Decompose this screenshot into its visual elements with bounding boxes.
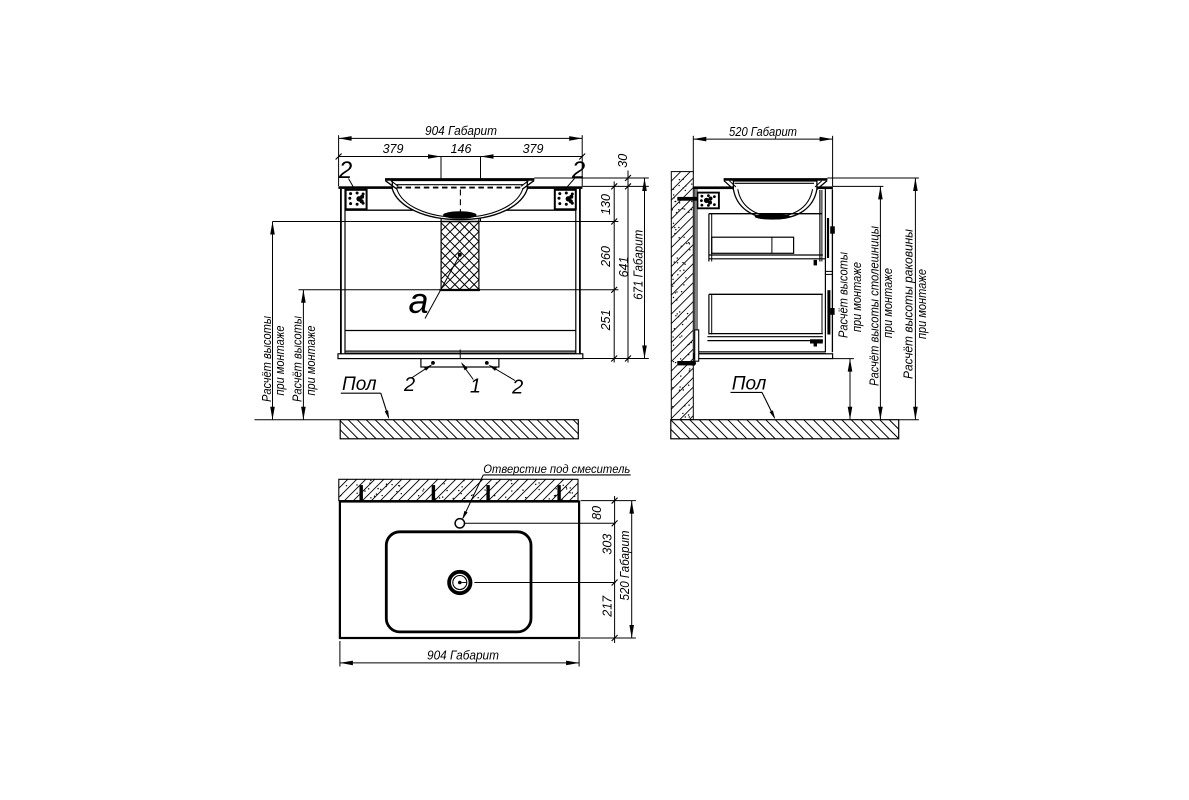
svg-text:671 Габарит: 671 Габарит <box>631 230 645 300</box>
svg-text:520 Габарит: 520 Габарит <box>729 124 797 139</box>
svg-text:при монтаже: при монтаже <box>915 269 929 339</box>
svg-text:260: 260 <box>599 246 613 268</box>
svg-text:Расчёт высоты: Расчёт высоты <box>291 316 305 402</box>
svg-text:при монтаже: при монтаже <box>850 262 864 332</box>
svg-text:Расчёт высоты столешницы: Расчёт высоты столешницы <box>868 226 882 386</box>
svg-text:при монтаже: при монтаже <box>304 325 318 395</box>
svg-text:217: 217 <box>601 595 615 618</box>
svg-text:Отверстие под смеситель: Отверстие под смеситель <box>483 462 630 476</box>
svg-text:Расчёт высоты раковины: Расчёт высоты раковины <box>902 229 916 379</box>
svg-text:520 Габарит: 520 Габарит <box>618 531 632 601</box>
svg-text:130: 130 <box>599 194 613 215</box>
svg-text:1: 1 <box>470 376 481 398</box>
svg-text:Пол: Пол <box>342 374 377 395</box>
svg-text:2: 2 <box>338 157 352 184</box>
svg-text:641: 641 <box>617 257 631 278</box>
svg-text:Расчёт высоты: Расчёт высоты <box>836 252 850 338</box>
svg-text:904 Габарит: 904 Габарит <box>425 123 497 138</box>
svg-text:904 Габарит: 904 Габарит <box>427 647 499 662</box>
svg-text:при монтаже: при монтаже <box>881 268 895 338</box>
svg-text:251: 251 <box>599 310 613 332</box>
svg-text:при монтаже: при монтаже <box>273 325 287 395</box>
svg-text:146: 146 <box>451 142 472 156</box>
svg-text:303: 303 <box>601 534 615 555</box>
svg-text:Пол: Пол <box>732 374 767 395</box>
svg-text:379: 379 <box>383 142 404 156</box>
svg-text:379: 379 <box>523 142 544 156</box>
svg-text:Расчёт высоты: Расчёт высоты <box>260 316 274 402</box>
svg-text:a: a <box>408 280 428 321</box>
svg-text:80: 80 <box>590 506 604 520</box>
svg-text:30: 30 <box>616 154 630 168</box>
